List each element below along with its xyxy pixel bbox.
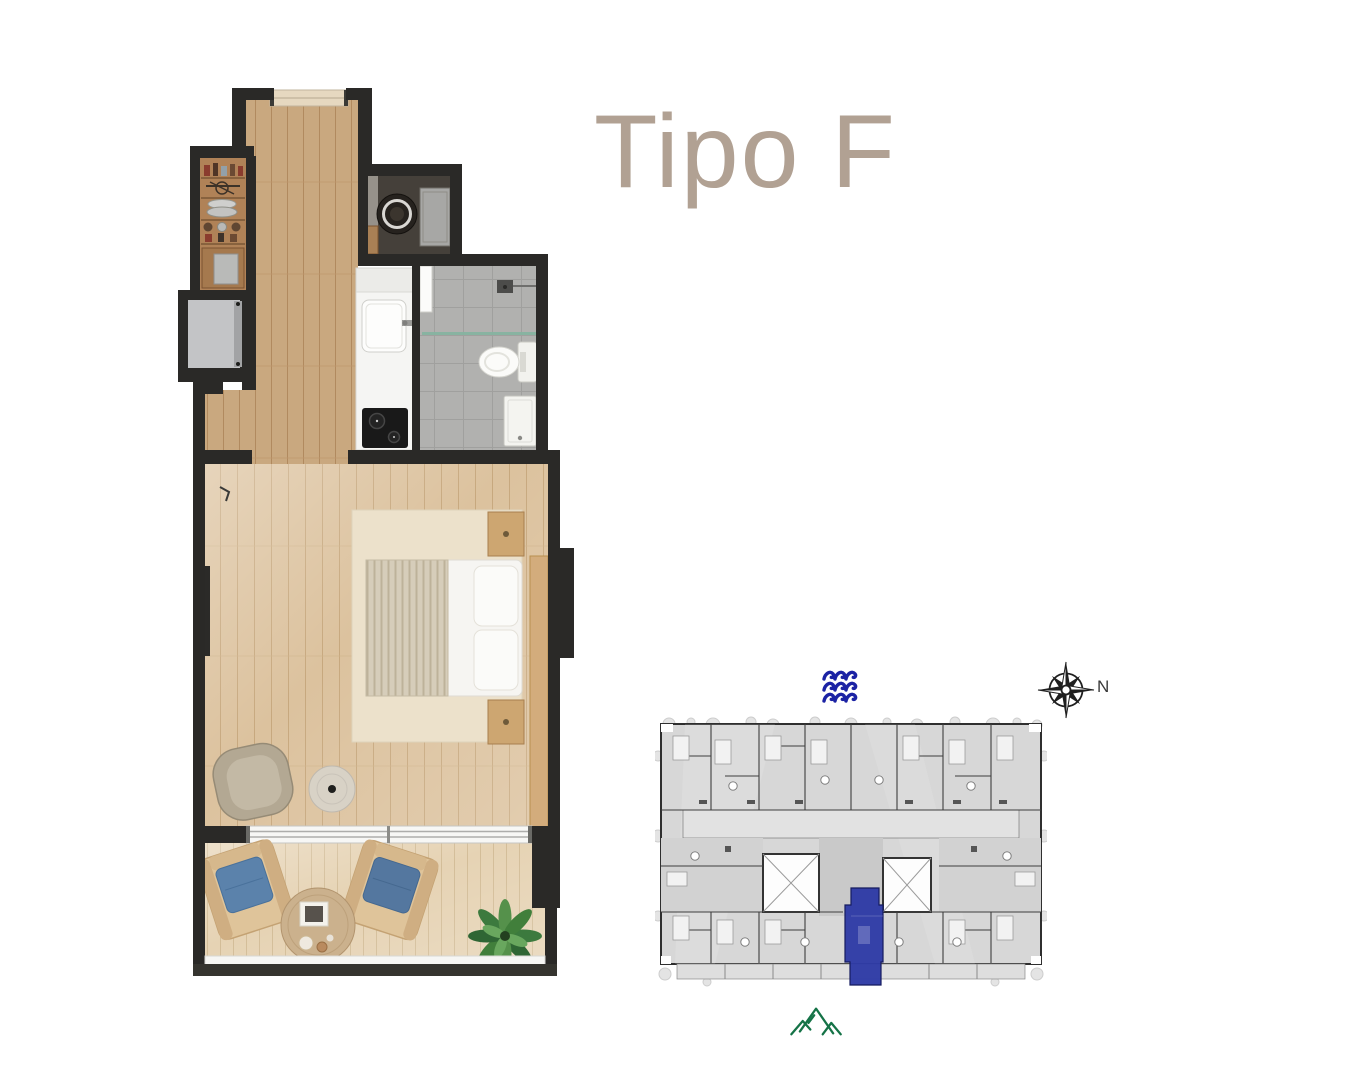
laundry-cabinet bbox=[420, 188, 450, 246]
pillow bbox=[474, 566, 518, 626]
kitchen-sink bbox=[362, 300, 406, 352]
page-title: Tipo F bbox=[594, 100, 897, 204]
headboard-panel bbox=[530, 556, 548, 830]
page: Tipo F bbox=[0, 0, 1350, 1080]
bed-blanket bbox=[366, 560, 448, 696]
mountains-icon bbox=[787, 1002, 847, 1040]
compass-north-label: N bbox=[1097, 677, 1110, 697]
service-room bbox=[183, 295, 245, 373]
cooktop bbox=[362, 408, 408, 448]
pantry-appliance bbox=[214, 254, 238, 284]
building-key-plan bbox=[655, 716, 1047, 988]
window-slider bbox=[246, 826, 532, 843]
kitchen bbox=[356, 268, 414, 450]
pillow bbox=[474, 630, 518, 690]
entry-door bbox=[270, 90, 348, 106]
sea-waves-icon bbox=[821, 669, 859, 703]
compass-rose-icon bbox=[1037, 661, 1095, 719]
entry-corridor-floor bbox=[246, 96, 358, 464]
corridor bbox=[683, 810, 1019, 838]
unit-floor-plan bbox=[175, 85, 575, 985]
balcony-edge bbox=[193, 964, 557, 976]
bathroom-door bbox=[420, 266, 432, 312]
shower-glass bbox=[422, 332, 536, 335]
